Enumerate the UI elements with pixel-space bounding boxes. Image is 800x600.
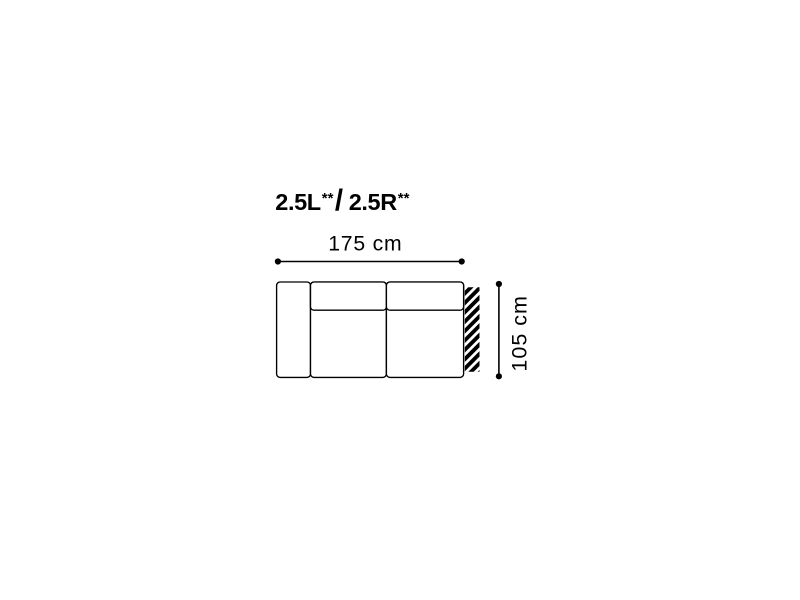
svg-text:105 cm: 105 cm (508, 295, 532, 372)
svg-text:175 cm: 175 cm (328, 233, 402, 256)
